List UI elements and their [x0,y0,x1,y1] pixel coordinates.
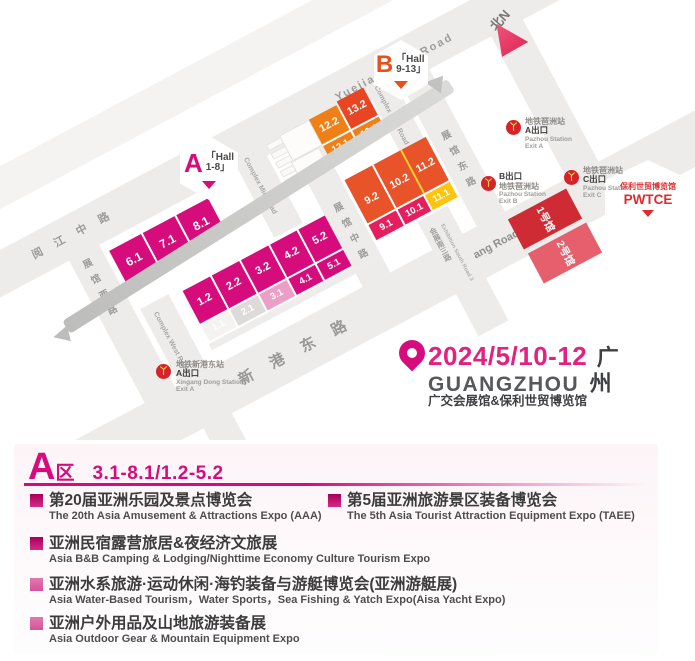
badge-pwtce-en: PWTCE [624,192,673,207]
station-line: Exit A [525,143,572,150]
expo-item-outdoor: 亚洲户外用品及山地旅游装备展 Asia Outdoor Gear & Mount… [30,615,300,646]
station-line: Pazhou Station [499,191,546,198]
bullet-icon [30,494,43,507]
expo-title: 亚洲户外用品及山地旅游装备展 [49,615,300,633]
bullet-icon [30,537,43,550]
station-xingangdong-exit-a: 地铁新港东站 A出口 Xingang Dong Station Exit A [176,360,244,394]
badge-b-pointer [394,81,408,89]
station-line: Pazhou Station [583,185,630,192]
metro-icon-xingangdong-a: 丫 [156,364,171,379]
bridge-arrow-south [51,326,70,345]
event-city-cn2: 州 [590,371,612,396]
expo-item-taee: 第5届亚洲旅游景区装备博览会 The 5th Asia Tourist Attr… [328,492,635,523]
expo-subtitle: Asia B&B Camping & Lodging/Nighttime Eco… [49,553,430,566]
expo-title: 第5届亚洲旅游景区装备博览会 [347,492,635,510]
location-pin-icon [394,335,431,372]
station-line: Exit B [499,198,546,205]
station-line: A出口 [176,369,244,379]
expo-subtitle: The 20th Asia Amusement & Attractions Ex… [49,510,322,523]
header-divider [24,483,646,486]
station-line: Exit C [583,192,630,199]
event-venue: 广交会展馆&保利世贸博览馆 [428,390,587,409]
badge-b-hall-line2: 9-13」 [396,65,426,76]
expo-item-water-yacht: 亚洲水系旅游·运动休闲·海钓装备与游艇博览会(亚洲游艇展) Asia Water… [30,576,505,607]
bullet-icon [328,494,341,507]
bullet-icon [30,617,43,630]
station-line: Xingang Dong Station [176,379,244,386]
expo-subtitle: Asia Water-Based Tourism，Water Sports，Se… [49,594,505,607]
station-line: C出口 [583,175,630,185]
panel-header: A 区 3.1-8.1/1.2-5.2 [28,448,224,486]
station-line: 地铁琶洲站 [499,182,546,191]
expo-title: 亚洲民宿露营旅居&夜经济文旅展 [49,535,430,553]
badge-a-letter: A [184,148,203,179]
station-line: Pazhou Station [525,136,572,143]
metro-icon-pazhou-c: 丫 [564,170,579,185]
zone-range: 3.1-8.1/1.2-5.2 [92,463,223,485]
bullet-icon [30,578,43,591]
badge-pwtce-pointer [642,210,654,217]
expo-subtitle: Asia Outdoor Gear & Mountain Equipment E… [49,633,300,646]
station-pazhou-exit-b: B出口 地铁琶洲站 Pazhou Station Exit B [499,172,546,206]
expo-title: 亚洲水系旅游·运动休闲·海钓装备与游艇博览会(亚洲游艇展) [49,576,505,594]
zone-letter: A [28,448,55,486]
badge-a-pointer [202,181,216,189]
zone-suffix: 区 [55,458,74,485]
station-pazhou-exit-a: 地铁琶洲站 A出口 Pazhou Station Exit A [525,117,572,151]
expo-subtitle: The 5th Asia Tourist Attraction Equipmen… [347,510,635,523]
expo-item-bnb-camping: 亚洲民宿露营旅居&夜经济文旅展 Asia B&B Camping & Lodgi… [30,535,430,566]
metro-icon-pazhou-b: 丫 [481,176,496,191]
badge-a-hall-line2: 1-8」 [206,163,234,174]
expo-item-aaa: 第20届亚洲乐园及景点博览会 The 20th Asia Amusement &… [30,492,322,523]
expo-title: 第20届亚洲乐园及景点博览会 [49,492,322,510]
venue-map: 阅江中路 Yuejiang Mid Road 新港东路 Xingang Road… [0,0,695,440]
station-pazhou-exit-c: 地铁琶洲站 C出口 Pazhou Station Exit C [583,166,630,200]
station-line: B出口 [499,172,546,182]
station-line: Exit A [176,386,244,393]
station-line: A出口 [525,126,572,136]
badge-b-letter: B [376,51,393,79]
zone-a-info-panel: A 区 3.1-8.1/1.2-5.2 第20届亚洲乐园及景点博览会 The 2… [14,444,658,654]
metro-icon-pazhou-a: 丫 [506,120,521,135]
